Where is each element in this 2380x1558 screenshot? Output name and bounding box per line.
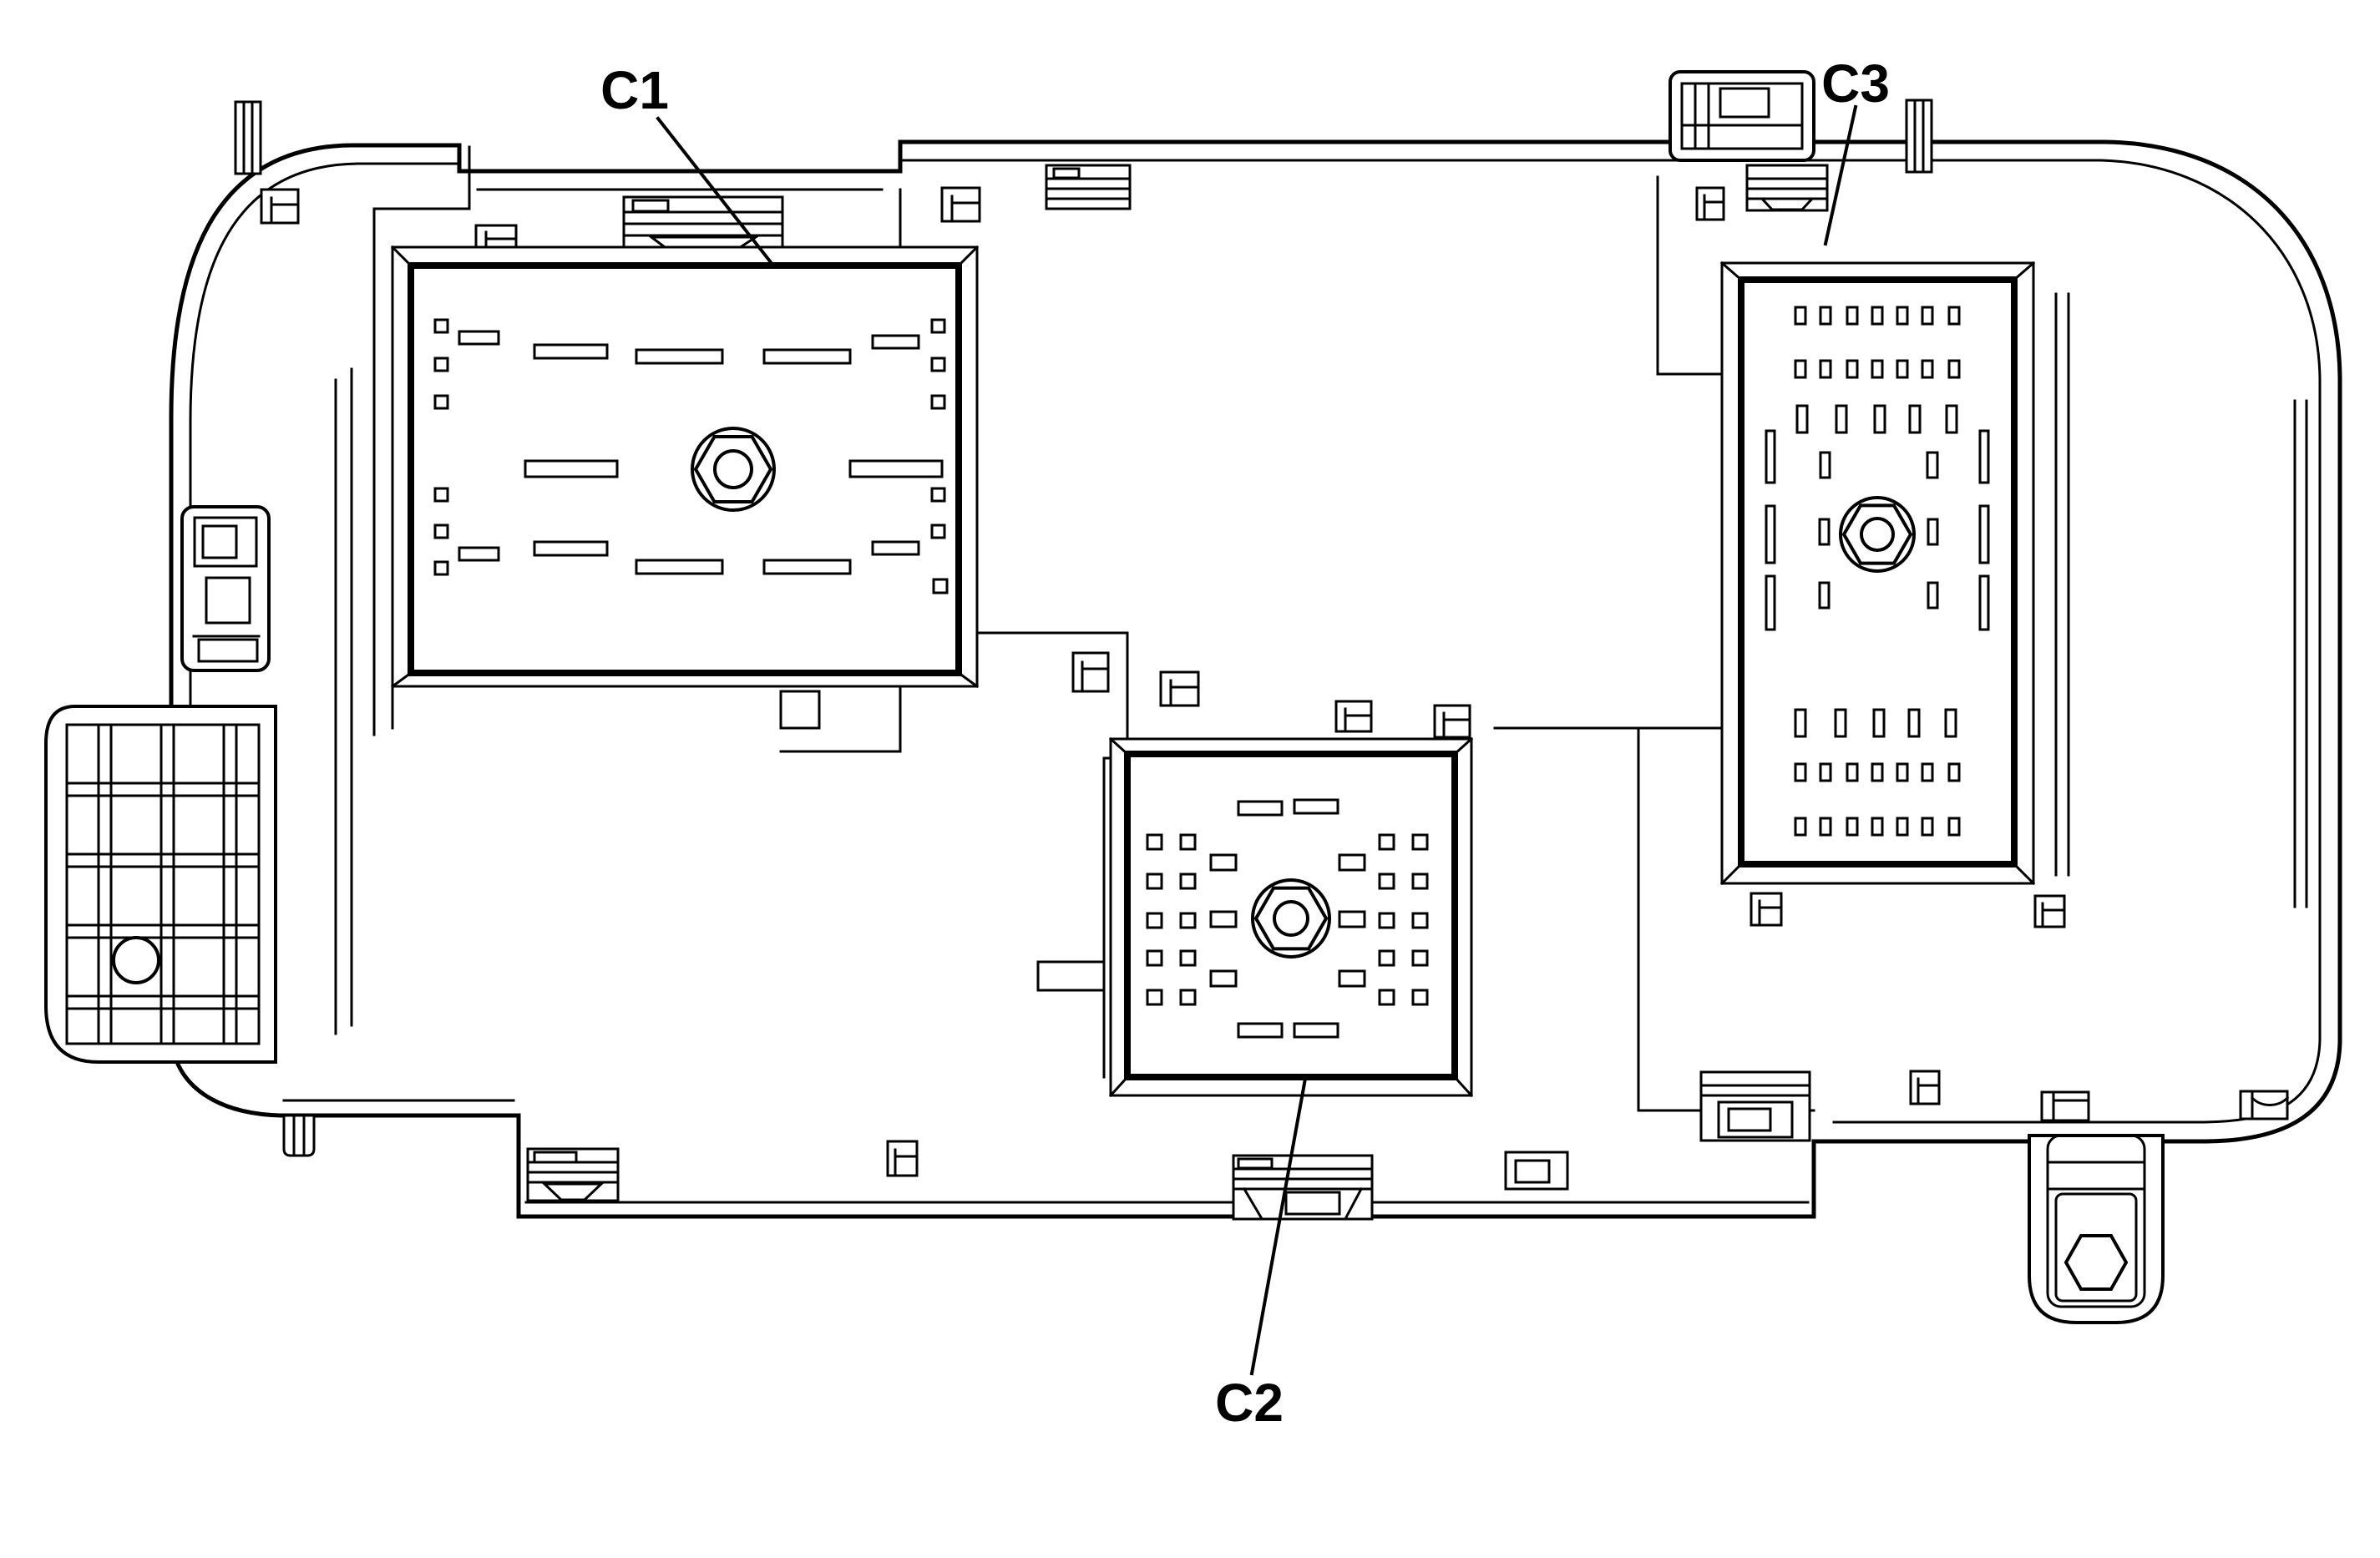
terminal-slot [1238, 802, 1282, 815]
waffle-mount-bracket [46, 706, 276, 1062]
inner-step-detail [781, 691, 819, 728]
latch-bracket-above-c3 [1747, 165, 1827, 210]
terminal-slot [534, 345, 607, 358]
mount-tab-hex [2029, 1136, 2163, 1323]
latch-bracket-below-c2 [1233, 1156, 1372, 1219]
bolt-hole-inner [1274, 902, 1308, 935]
alignment-post-right [1907, 100, 1932, 172]
terminal-slot [459, 331, 499, 344]
label-c3: C3 [1821, 53, 1890, 114]
latch-bracket-bottom-left [528, 1149, 618, 1201]
connector-c2 [1111, 739, 1471, 1095]
side-clip-bracket-left [182, 507, 269, 670]
tab-bottom-left [284, 1115, 314, 1156]
bolt-hole-inner [715, 451, 752, 488]
terminal-slot [459, 548, 499, 560]
terminal-slot [873, 336, 919, 348]
connector-c1 [392, 247, 977, 686]
bolt-hole-inner [1861, 518, 1893, 550]
terminal-slot [850, 461, 942, 477]
latch-top-right [1670, 72, 1814, 160]
terminal-slot [525, 461, 617, 477]
terminal-slot [534, 542, 607, 555]
bracket-hole [114, 938, 159, 983]
label-c2: C2 [1215, 1373, 1284, 1433]
diagram-canvas: C1 C2 C3 [0, 0, 2380, 1558]
terminal-slot [764, 350, 850, 363]
fuse-block-diagram: C1 C2 C3 [0, 0, 2380, 1558]
terminal-slot [636, 350, 722, 363]
alignment-post-left [235, 102, 261, 174]
terminal-slot [636, 560, 722, 574]
latch-bracket-below-c3 [1701, 1072, 1810, 1141]
terminal-slot [1238, 1024, 1282, 1037]
terminal-slot [1294, 800, 1338, 813]
latch-bracket-top-c1 [624, 197, 782, 250]
connectors [392, 247, 2033, 1095]
hex-hole [2066, 1236, 2126, 1289]
label-c1: C1 [600, 60, 669, 120]
terminal-slot [873, 542, 919, 554]
leader-line-c3 [1826, 107, 1856, 244]
terminal-slot [764, 560, 850, 574]
bracket-bottom-right-of-c2 [1506, 1152, 1567, 1189]
leader-line-c2 [1252, 1079, 1305, 1373]
connector-c3 [1722, 263, 2033, 883]
latch-bracket-top-mid [1046, 165, 1130, 209]
terminal-slot [1294, 1024, 1338, 1037]
